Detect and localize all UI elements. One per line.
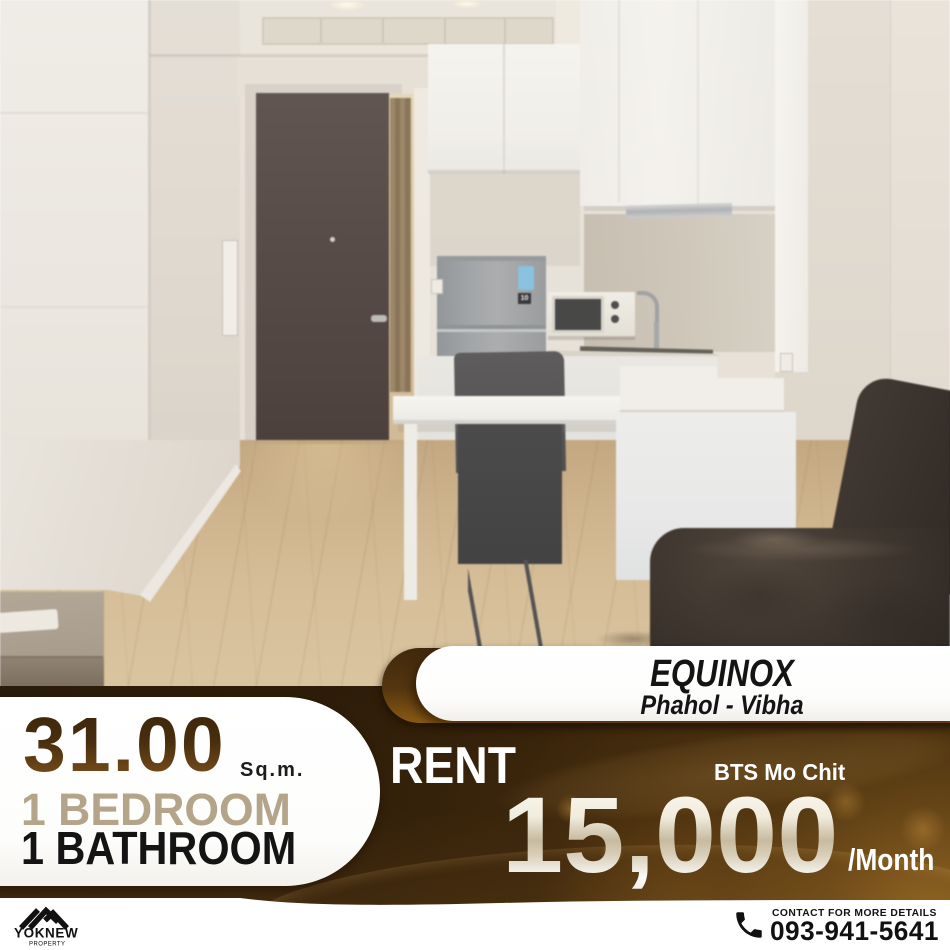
svg-text:YOKNEW: YOKNEW	[14, 926, 78, 941]
svg-text:PROPERTY: PROPERTY	[29, 942, 66, 948]
